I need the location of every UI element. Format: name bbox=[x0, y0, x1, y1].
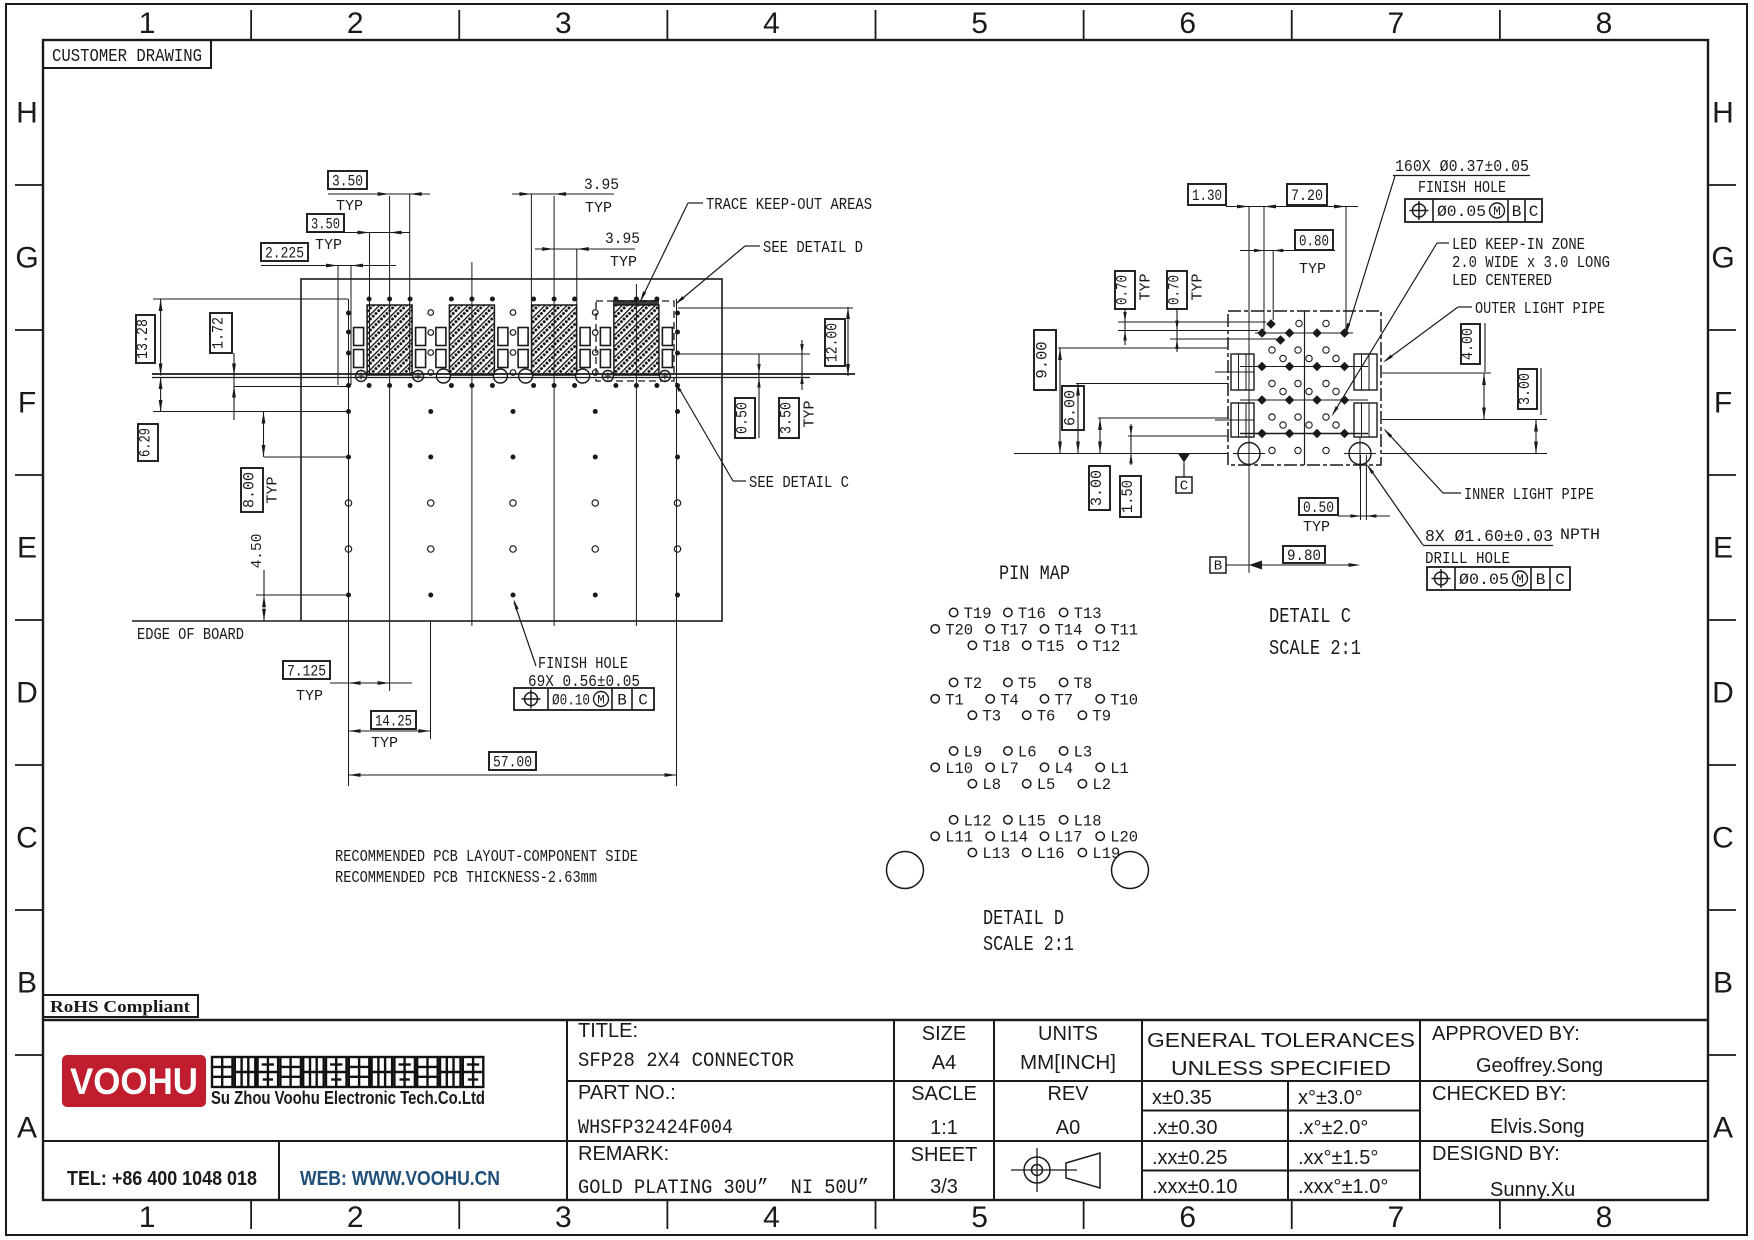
svg-text:7.125: 7.125 bbox=[287, 663, 326, 681]
svg-text:LED KEEP-IN ZONE: LED KEEP-IN ZONE bbox=[1452, 235, 1585, 254]
svg-text:0.50: 0.50 bbox=[1303, 499, 1334, 517]
svg-text:B: B bbox=[1536, 571, 1546, 589]
svg-text:T20: T20 bbox=[945, 621, 973, 639]
svg-text:FINISH HOLE: FINISH HOLE bbox=[538, 654, 628, 673]
svg-text:DRILL HOLE: DRILL HOLE bbox=[1425, 549, 1510, 568]
svg-text:0.70: 0.70 bbox=[1114, 275, 1132, 305]
svg-text:T3: T3 bbox=[982, 708, 1001, 726]
svg-text:E: E bbox=[1713, 532, 1733, 565]
svg-text:Geoffrey.Song: Geoffrey.Song bbox=[1476, 1055, 1603, 1077]
svg-text:RoHS Compliant: RoHS Compliant bbox=[50, 997, 190, 1016]
svg-text:TRACE KEEP-OUT AREAS: TRACE KEEP-OUT AREAS bbox=[706, 195, 872, 214]
svg-text:A: A bbox=[1713, 1112, 1733, 1145]
svg-text:0.80: 0.80 bbox=[1299, 233, 1329, 251]
svg-text:T15: T15 bbox=[1037, 638, 1065, 656]
svg-text:B: B bbox=[1214, 559, 1222, 575]
svg-text:T1: T1 bbox=[945, 691, 964, 709]
svg-text:MM[INCH]: MM[INCH] bbox=[1020, 1052, 1116, 1074]
svg-text:6.29: 6.29 bbox=[137, 428, 155, 457]
svg-text:SCALE 2:1: SCALE 2:1 bbox=[1269, 638, 1361, 661]
svg-text:1: 1 bbox=[139, 7, 156, 40]
svg-text:3: 3 bbox=[555, 7, 572, 40]
svg-text:13.28: 13.28 bbox=[134, 319, 152, 359]
svg-text:7: 7 bbox=[1387, 1201, 1404, 1234]
svg-text:1.72: 1.72 bbox=[210, 317, 228, 349]
svg-text:APPROVED BY:: APPROVED BY: bbox=[1432, 1023, 1580, 1045]
svg-text:CHECKED BY:: CHECKED BY: bbox=[1432, 1083, 1566, 1105]
svg-text:T9: T9 bbox=[1092, 708, 1111, 726]
svg-text:DETAIL D: DETAIL D bbox=[983, 908, 1064, 931]
svg-text:Elvis.Song: Elvis.Song bbox=[1490, 1116, 1585, 1138]
svg-text:B: B bbox=[1713, 967, 1733, 1000]
svg-text:WEB: WWW.VOOHU.CN: WEB: WWW.VOOHU.CN bbox=[300, 1168, 500, 1190]
svg-text:L20: L20 bbox=[1110, 829, 1138, 847]
svg-text:TITLE:: TITLE: bbox=[578, 1020, 638, 1042]
svg-text:Ø0.10: Ø0.10 bbox=[552, 692, 590, 710]
svg-text:M: M bbox=[597, 694, 605, 708]
svg-text:L16: L16 bbox=[1037, 845, 1065, 863]
svg-text:T6: T6 bbox=[1037, 708, 1056, 726]
svg-text:TEL: +86 400 1048 018: TEL: +86 400 1048 018 bbox=[67, 1168, 257, 1190]
svg-text:T16: T16 bbox=[1018, 605, 1046, 623]
svg-text:.xxx°±1.0°: .xxx°±1.0° bbox=[1298, 1176, 1388, 1198]
svg-text:4.00: 4.00 bbox=[1459, 328, 1477, 360]
svg-text:5: 5 bbox=[971, 7, 988, 40]
svg-text:9.80: 9.80 bbox=[1287, 547, 1321, 565]
svg-text:2.0 WIDE x 3.0 LONG: 2.0 WIDE x 3.0 LONG bbox=[1452, 253, 1610, 272]
svg-text:L10: L10 bbox=[945, 760, 973, 778]
svg-text:T2: T2 bbox=[964, 675, 983, 693]
svg-text:A0: A0 bbox=[1056, 1117, 1080, 1139]
svg-text:A4: A4 bbox=[932, 1052, 956, 1074]
svg-text:x°±3.0°: x°±3.0° bbox=[1298, 1087, 1363, 1109]
svg-text:4: 4 bbox=[763, 1201, 780, 1234]
svg-text:Sunny.Xu: Sunny.Xu bbox=[1490, 1179, 1575, 1201]
svg-text:A: A bbox=[17, 1112, 37, 1145]
svg-text:REV: REV bbox=[1047, 1083, 1089, 1105]
svg-text:1:1: 1:1 bbox=[930, 1117, 958, 1139]
svg-text:L14: L14 bbox=[1000, 829, 1028, 847]
svg-text:3: 3 bbox=[555, 1201, 572, 1234]
svg-text:T14: T14 bbox=[1055, 621, 1083, 639]
svg-text:8: 8 bbox=[1596, 1201, 1613, 1234]
svg-text:EDGE OF BOARD: EDGE OF BOARD bbox=[137, 625, 244, 644]
svg-text:TYP: TYP bbox=[315, 237, 342, 254]
svg-text:D: D bbox=[1712, 677, 1734, 710]
svg-text:E: E bbox=[17, 532, 37, 565]
svg-text:1.50: 1.50 bbox=[1119, 480, 1137, 513]
svg-text:DETAIL C: DETAIL C bbox=[1269, 606, 1351, 629]
svg-text:TYP: TYP bbox=[1137, 273, 1154, 300]
svg-text:3.95: 3.95 bbox=[584, 176, 619, 194]
svg-text:0.70: 0.70 bbox=[1166, 275, 1184, 305]
svg-text:L19: L19 bbox=[1092, 845, 1120, 863]
svg-text:0.50: 0.50 bbox=[734, 402, 752, 434]
svg-text:T4: T4 bbox=[1000, 691, 1019, 709]
svg-text:T10: T10 bbox=[1110, 691, 1138, 709]
svg-text:C: C bbox=[16, 822, 38, 855]
svg-text:6: 6 bbox=[1179, 7, 1196, 40]
svg-text:SEE DETAIL D: SEE DETAIL D bbox=[763, 238, 863, 257]
svg-text:9.00: 9.00 bbox=[1034, 341, 1052, 378]
svg-text:GENERAL TOLERANCES: GENERAL TOLERANCES bbox=[1147, 1030, 1415, 1052]
svg-text:12.00: 12.00 bbox=[824, 323, 842, 362]
svg-text:L2: L2 bbox=[1092, 776, 1111, 794]
svg-text:SHEET: SHEET bbox=[911, 1144, 978, 1166]
svg-text:SEE DETAIL C: SEE DETAIL C bbox=[749, 473, 849, 492]
svg-text:L6: L6 bbox=[1018, 743, 1037, 761]
svg-text:2: 2 bbox=[347, 7, 364, 40]
svg-text:B: B bbox=[17, 967, 37, 1000]
svg-text:C: C bbox=[1529, 203, 1539, 221]
svg-text:UNLESS SPECIFIED: UNLESS SPECIFIED bbox=[1171, 1058, 1391, 1080]
svg-text:4.50: 4.50 bbox=[250, 534, 266, 569]
svg-text:TYP: TYP bbox=[264, 476, 281, 503]
svg-text:TYP: TYP bbox=[801, 400, 818, 427]
svg-text:SACLE: SACLE bbox=[911, 1083, 977, 1105]
svg-text:GOLD PLATING 30U” NI 50U”: GOLD PLATING 30U” NI 50U” bbox=[578, 1177, 869, 1200]
svg-text:TYP: TYP bbox=[1299, 261, 1326, 278]
svg-text:1.30: 1.30 bbox=[1192, 187, 1222, 205]
svg-text:.xx±0.25: .xx±0.25 bbox=[1152, 1147, 1227, 1169]
svg-text:L5: L5 bbox=[1037, 776, 1056, 794]
svg-text:3/3: 3/3 bbox=[930, 1176, 958, 1198]
svg-text:L18: L18 bbox=[1074, 812, 1102, 830]
svg-text:TYP: TYP bbox=[336, 198, 363, 215]
svg-text:C: C bbox=[638, 692, 648, 710]
svg-text:REMARK:: REMARK: bbox=[578, 1143, 669, 1165]
svg-text:B: B bbox=[1512, 203, 1522, 221]
svg-text:x±0.35: x±0.35 bbox=[1152, 1087, 1212, 1109]
svg-text:T7: T7 bbox=[1055, 691, 1074, 709]
svg-text:TYP: TYP bbox=[1303, 519, 1330, 536]
svg-text:VOOHU: VOOHU bbox=[70, 1061, 198, 1102]
svg-text:L8: L8 bbox=[982, 776, 1001, 794]
svg-text:L9: L9 bbox=[964, 743, 983, 761]
svg-text:LED CENTERED: LED CENTERED bbox=[1452, 271, 1552, 290]
svg-text:.xxx±0.10: .xxx±0.10 bbox=[1152, 1176, 1237, 1198]
svg-text:PART NO.:: PART NO.: bbox=[578, 1082, 676, 1104]
svg-text:T17: T17 bbox=[1000, 621, 1028, 639]
svg-text:L3: L3 bbox=[1074, 743, 1093, 761]
svg-text:4: 4 bbox=[763, 7, 780, 40]
svg-text:UNITS: UNITS bbox=[1038, 1023, 1098, 1045]
svg-text:L17: L17 bbox=[1055, 829, 1083, 847]
svg-text:T13: T13 bbox=[1074, 605, 1102, 623]
svg-text:1: 1 bbox=[139, 1201, 156, 1234]
svg-text:.x±0.30: .x±0.30 bbox=[1152, 1117, 1217, 1139]
svg-text:RECOMMENDED PCB THICKNESS-2.63: RECOMMENDED PCB THICKNESS-2.63mm bbox=[335, 869, 597, 888]
svg-text:2.225: 2.225 bbox=[265, 245, 304, 263]
svg-text:Ø0.05: Ø0.05 bbox=[1437, 203, 1486, 221]
svg-text:FINISH HOLE: FINISH HOLE bbox=[1418, 178, 1506, 197]
svg-text:14.25: 14.25 bbox=[375, 713, 412, 731]
svg-text:WHSFP32424F004: WHSFP32424F004 bbox=[578, 1117, 733, 1140]
svg-text:3.50: 3.50 bbox=[311, 216, 340, 234]
svg-text:L4: L4 bbox=[1055, 760, 1074, 778]
svg-text:2: 2 bbox=[347, 1201, 364, 1234]
svg-text:8: 8 bbox=[1596, 7, 1613, 40]
svg-text:H: H bbox=[1712, 97, 1734, 130]
svg-text:RECOMMENDED PCB LAYOUT-COMPONE: RECOMMENDED PCB LAYOUT-COMPONENT SIDE bbox=[335, 848, 638, 867]
svg-text:C: C bbox=[1180, 479, 1188, 495]
svg-text:F: F bbox=[1714, 387, 1732, 420]
svg-text:.x°±2.0°: .x°±2.0° bbox=[1298, 1117, 1368, 1139]
svg-text:SCALE 2:1: SCALE 2:1 bbox=[983, 934, 1074, 957]
svg-text:C: C bbox=[1555, 571, 1565, 589]
svg-text:T19: T19 bbox=[964, 605, 992, 623]
svg-text:T11: T11 bbox=[1110, 621, 1138, 639]
svg-text:6: 6 bbox=[1179, 1201, 1196, 1234]
svg-text:8.00: 8.00 bbox=[241, 472, 259, 508]
svg-text:D: D bbox=[16, 677, 38, 710]
svg-text:Su Zhou Voohu Electronic Tech.: Su Zhou Voohu Electronic Tech.Co.Ltd bbox=[211, 1088, 485, 1108]
svg-text:DESIGND BY:: DESIGND BY: bbox=[1432, 1143, 1560, 1165]
svg-text:T18: T18 bbox=[982, 638, 1010, 656]
svg-text:L15: L15 bbox=[1018, 812, 1046, 830]
svg-text:OUTER LIGHT PIPE: OUTER LIGHT PIPE bbox=[1475, 299, 1605, 318]
svg-text:7: 7 bbox=[1387, 7, 1404, 40]
svg-text:3.00: 3.00 bbox=[1088, 470, 1106, 506]
svg-text:TYP: TYP bbox=[610, 254, 637, 271]
svg-text:L12: L12 bbox=[964, 812, 992, 830]
svg-text:T12: T12 bbox=[1092, 638, 1120, 656]
svg-text:.xx°±1.5°: .xx°±1.5° bbox=[1298, 1147, 1378, 1169]
svg-text:7.20: 7.20 bbox=[1291, 187, 1323, 205]
svg-text:Ø0.05: Ø0.05 bbox=[1459, 571, 1509, 589]
svg-text:C: C bbox=[1712, 822, 1734, 855]
svg-text:F: F bbox=[18, 387, 36, 420]
svg-text:H: H bbox=[16, 97, 38, 130]
svg-text:L13: L13 bbox=[982, 845, 1010, 863]
svg-text:SFP28 2X4 CONNECTOR: SFP28 2X4 CONNECTOR bbox=[578, 1050, 794, 1073]
svg-text:T5: T5 bbox=[1018, 675, 1037, 693]
svg-text:3.00: 3.00 bbox=[1516, 373, 1534, 405]
svg-text:57.00: 57.00 bbox=[493, 754, 532, 772]
svg-text:5: 5 bbox=[971, 1201, 988, 1234]
svg-text:TYP: TYP bbox=[1189, 273, 1206, 300]
svg-text:L1: L1 bbox=[1110, 760, 1129, 778]
svg-text:TYP: TYP bbox=[296, 688, 323, 705]
svg-text:B: B bbox=[617, 692, 627, 710]
svg-text:TYP: TYP bbox=[585, 200, 612, 217]
svg-text:INNER LIGHT PIPE: INNER LIGHT PIPE bbox=[1464, 485, 1594, 504]
svg-text:L7: L7 bbox=[1000, 760, 1019, 778]
svg-text:3.95: 3.95 bbox=[605, 230, 640, 248]
svg-text:M: M bbox=[1493, 205, 1501, 219]
svg-text:G: G bbox=[15, 242, 38, 275]
svg-text:8X Ø1.60±0.03: 8X Ø1.60±0.03 bbox=[1425, 527, 1553, 546]
svg-text:G: G bbox=[1711, 242, 1734, 275]
svg-text:M: M bbox=[1516, 573, 1524, 587]
svg-text:3.50: 3.50 bbox=[778, 402, 796, 434]
svg-text:L11: L11 bbox=[945, 829, 973, 847]
svg-text:TYP: TYP bbox=[371, 735, 398, 752]
svg-text:CUSTOMER DRAWING: CUSTOMER DRAWING bbox=[52, 47, 202, 67]
svg-text:NPTH: NPTH bbox=[1560, 526, 1600, 544]
svg-text:3.50: 3.50 bbox=[332, 173, 363, 191]
svg-text:SIZE: SIZE bbox=[922, 1023, 966, 1045]
svg-text:160X Ø0.37±0.05: 160X Ø0.37±0.05 bbox=[1395, 157, 1529, 176]
svg-text:T8: T8 bbox=[1074, 675, 1093, 693]
svg-text:PIN MAP: PIN MAP bbox=[999, 563, 1070, 586]
